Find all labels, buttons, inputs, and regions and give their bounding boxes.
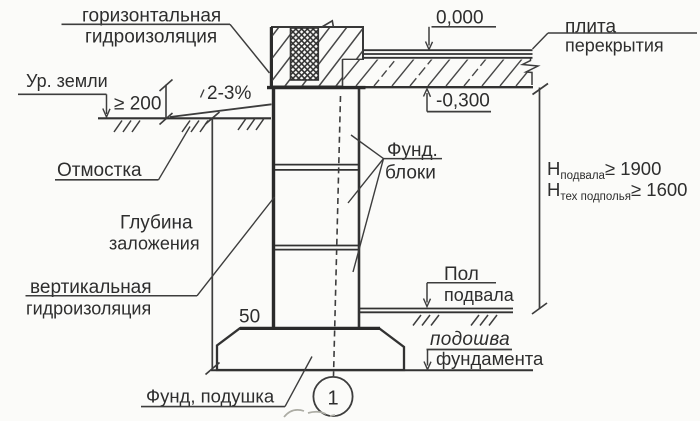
svg-text:вертикальная: вертикальная — [30, 277, 152, 298]
svg-text:50: 50 — [239, 307, 260, 328]
svg-text:гидроизоляция: гидроизоляция — [85, 27, 217, 48]
svg-text:2-3%: 2-3% — [207, 83, 251, 104]
svg-text:блоки: блоки — [385, 163, 436, 184]
svg-text:Ур. земли: Ур. земли — [26, 71, 108, 91]
svg-text:Пол: Пол — [444, 264, 479, 285]
svg-text:0,000: 0,000 — [436, 8, 484, 29]
svg-text:фундамента: фундамента — [436, 348, 544, 369]
svg-text:Фунд, подушка: Фунд, подушка — [146, 386, 275, 407]
svg-text:Глубина: Глубина — [120, 213, 193, 234]
svg-text:плита: плита — [565, 17, 616, 38]
svg-text:подошва: подошва — [430, 329, 510, 350]
svg-text:горизонтальная: горизонтальная — [82, 6, 221, 27]
svg-text:1: 1 — [327, 388, 338, 410]
svg-text:гидроизоляция: гидроизоляция — [26, 299, 151, 319]
svg-text:-0,300: -0,300 — [436, 91, 490, 112]
svg-text:перекрытия: перекрытия — [565, 36, 664, 56]
svg-text:Отмостка: Отмостка — [57, 160, 142, 181]
svg-text:заложения: заложения — [109, 234, 200, 254]
svg-text:подвала: подвала — [444, 285, 515, 305]
svg-text:≥ 200: ≥ 200 — [114, 94, 161, 115]
